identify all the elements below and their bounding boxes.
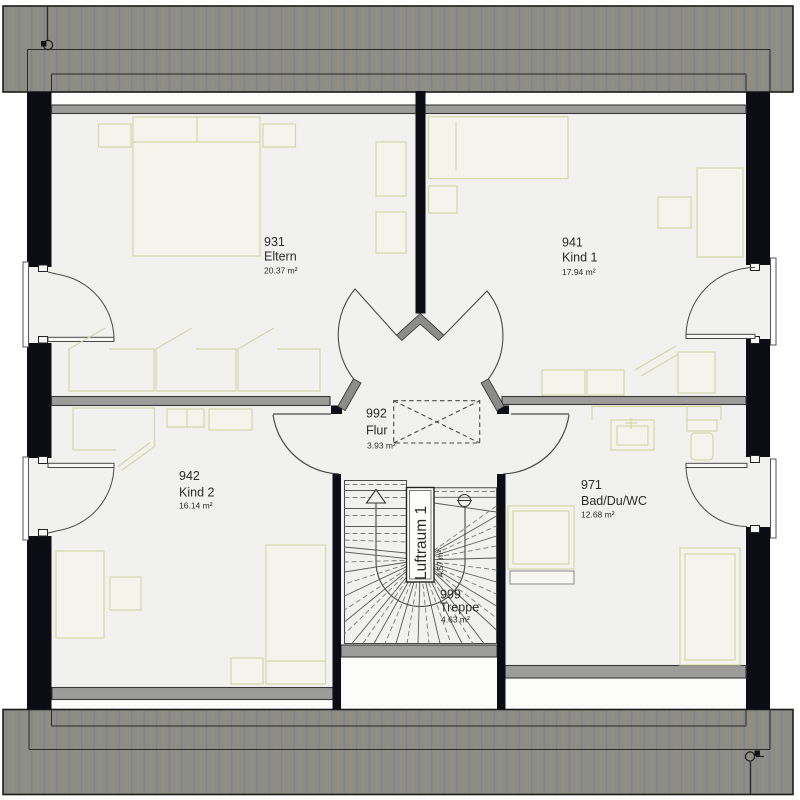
svg-text:971: 971 [581, 478, 602, 492]
svg-text:Kind 2: Kind 2 [179, 486, 214, 500]
svg-text:941: 941 [562, 236, 583, 250]
svg-text:17.94 m²: 17.94 m² [562, 267, 596, 277]
svg-text:4.63 m²: 4.63 m² [441, 615, 470, 625]
svg-text:Eltern: Eltern [264, 250, 297, 264]
svg-text:Flur: Flur [366, 424, 388, 438]
svg-text:16.14 m²: 16.14 m² [179, 501, 213, 511]
svg-text:12.68 m²: 12.68 m² [581, 510, 615, 520]
svg-text:3.93 m²: 3.93 m² [367, 441, 396, 451]
svg-text:942: 942 [179, 469, 200, 483]
svg-text:4.57 m²: 4.57 m² [436, 550, 445, 577]
svg-text:Luftraum 1: Luftraum 1 [413, 506, 430, 580]
svg-text:931: 931 [264, 235, 285, 249]
svg-text:999: 999 [440, 588, 461, 602]
svg-text:992: 992 [366, 407, 387, 421]
svg-text:Bad/Du/WC: Bad/Du/WC [581, 494, 647, 508]
svg-text:20.37 m²: 20.37 m² [264, 266, 298, 276]
svg-text:Kind 1: Kind 1 [562, 251, 597, 265]
svg-text:Treppe: Treppe [440, 601, 479, 615]
